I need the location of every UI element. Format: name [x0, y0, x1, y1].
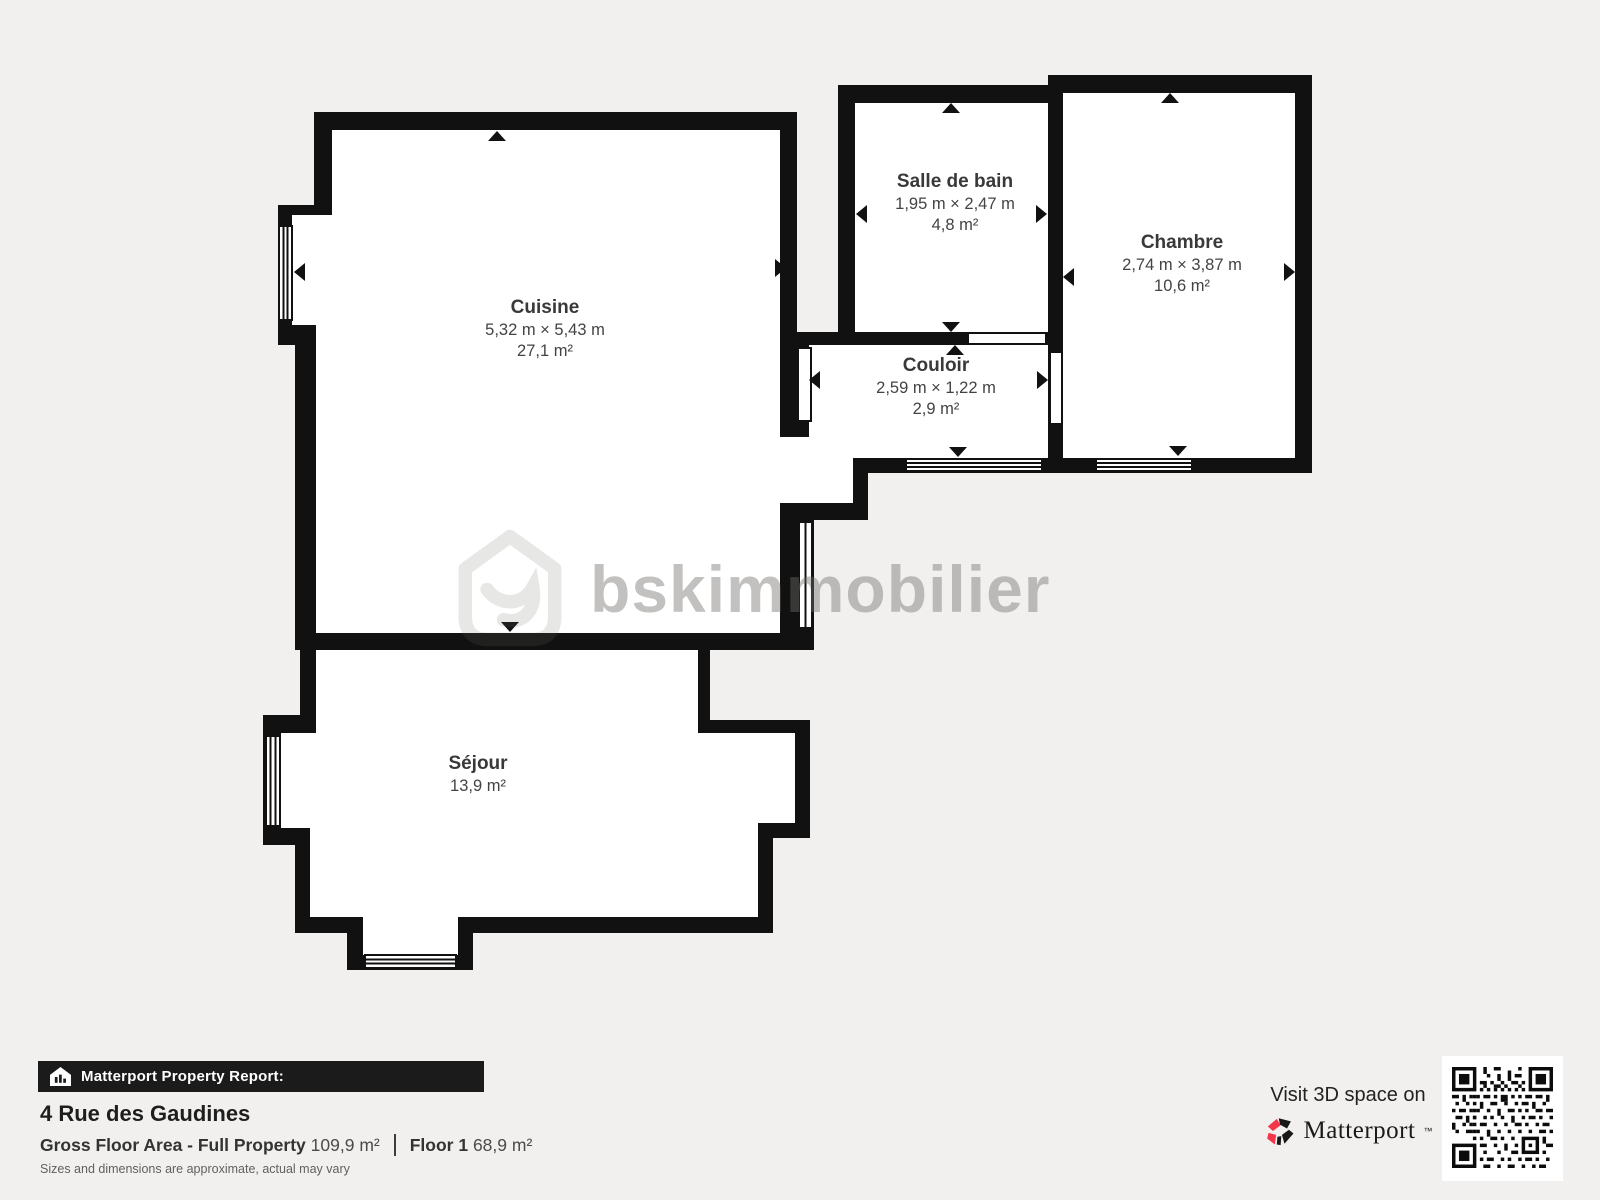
room-name: Cuisine: [485, 295, 605, 320]
qr-code: [1452, 1067, 1553, 1168]
matterport-logo-icon: [1264, 1115, 1296, 1147]
room-name: Couloir: [876, 353, 996, 378]
room-name: Chambre: [1122, 230, 1242, 255]
room-area: 13,9 m²: [448, 776, 507, 797]
room-label-cuisine: Cuisine 5,32 m × 5,43 m 27,1 m²: [485, 295, 605, 362]
matterport-wordmark: Matterport: [1304, 1117, 1416, 1145]
room-dimensions: 5,32 m × 5,43 m: [485, 320, 605, 341]
floor-value: 68,9 m²: [473, 1135, 532, 1156]
room-label-sejour: Séjour 13,9 m²: [448, 751, 507, 797]
room-name: Séjour: [448, 751, 507, 776]
room-label-chambre: Chambre 2,74 m × 3,87 m 10,6 m²: [1122, 230, 1242, 297]
room-name: Salle de bain: [895, 169, 1015, 194]
matterport-house-icon: [50, 1067, 71, 1086]
room-dimensions: 2,59 m × 1,22 m: [876, 378, 996, 399]
trademark-symbol: ™: [1423, 1126, 1432, 1136]
room-label-salle-de-bain: Salle de bain 1,95 m × 2,47 m 4,8 m²: [895, 169, 1015, 236]
room-dimensions: 2,74 m × 3,87 m: [1122, 255, 1242, 276]
property-address: 4 Rue des Gaudines: [40, 1101, 250, 1127]
gross-floor-area-value: 109,9 m²: [311, 1135, 380, 1156]
gross-floor-area-label: Gross Floor Area - Full Property: [40, 1135, 306, 1156]
room-label-couloir: Couloir 2,59 m × 1,22 m 2,9 m²: [876, 353, 996, 420]
disclaimer-text: Sizes and dimensions are approximate, ac…: [40, 1162, 350, 1176]
room-dimensions: 1,95 m × 2,47 m: [895, 194, 1015, 215]
visit-3d-text: Visit 3D space on: [1250, 1084, 1446, 1107]
floor-area-stats: Gross Floor Area - Full Property 109,9 m…: [40, 1134, 532, 1156]
room-area: 10,6 m²: [1122, 276, 1242, 297]
qr-code-card: [1442, 1056, 1563, 1181]
floorplan-svg: [0, 0, 1600, 1200]
report-banner-title: Matterport Property Report:: [81, 1068, 284, 1085]
visit-3d-cta: Visit 3D space on Matterport ™: [1250, 1084, 1446, 1147]
screenshot-canvas: bskimmobilier Cuisine 5,32 m × 5,43 m 27…: [0, 0, 1600, 1200]
stats-divider: [394, 1134, 396, 1156]
room-area: 4,8 m²: [895, 215, 1015, 236]
report-banner: Matterport Property Report:: [38, 1061, 484, 1092]
floor-label: Floor 1: [410, 1135, 468, 1156]
room-area: 27,1 m²: [485, 341, 605, 362]
room-area: 2,9 m²: [876, 399, 996, 420]
